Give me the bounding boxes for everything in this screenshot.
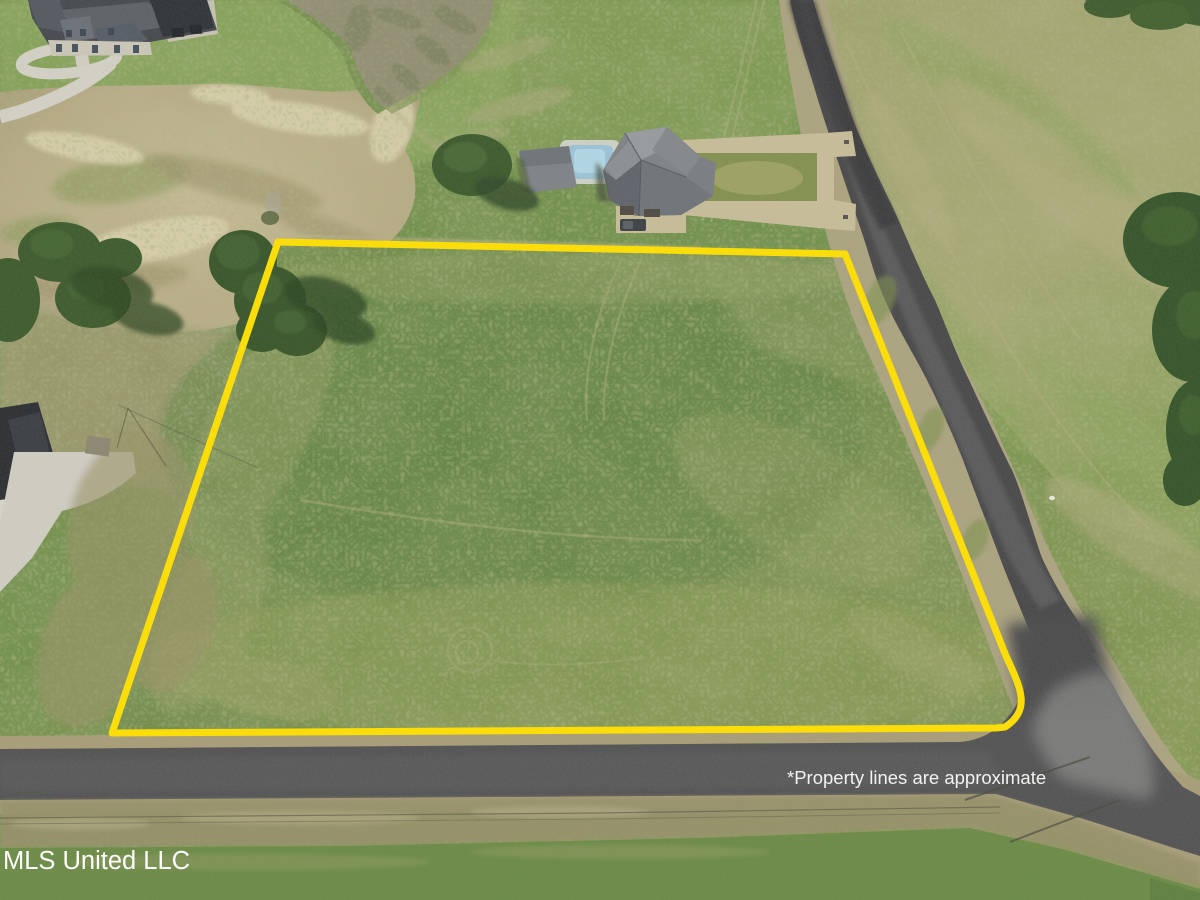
svg-text:MLS United LLC: MLS United LLC — [3, 847, 190, 875]
svg-text:*Property lines are approximat: *Property lines are approximate — [787, 767, 1046, 788]
